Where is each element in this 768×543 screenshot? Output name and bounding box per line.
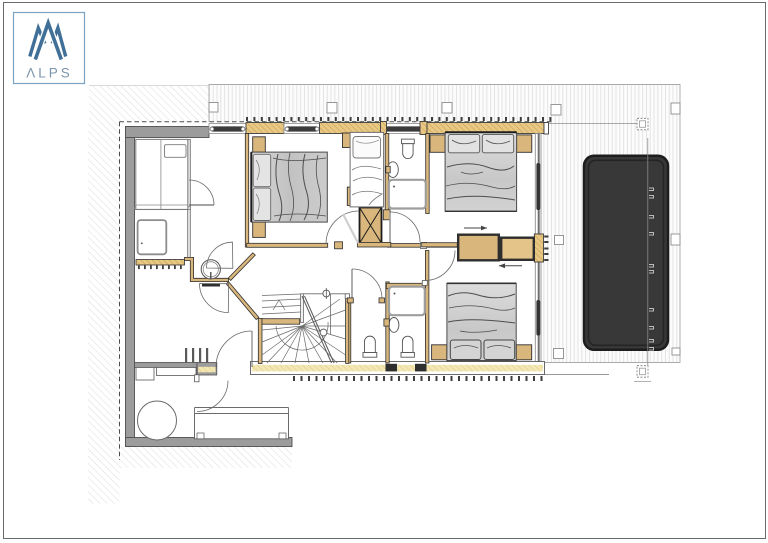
svg-text:ΛLPS: ΛLPS	[26, 66, 73, 81]
